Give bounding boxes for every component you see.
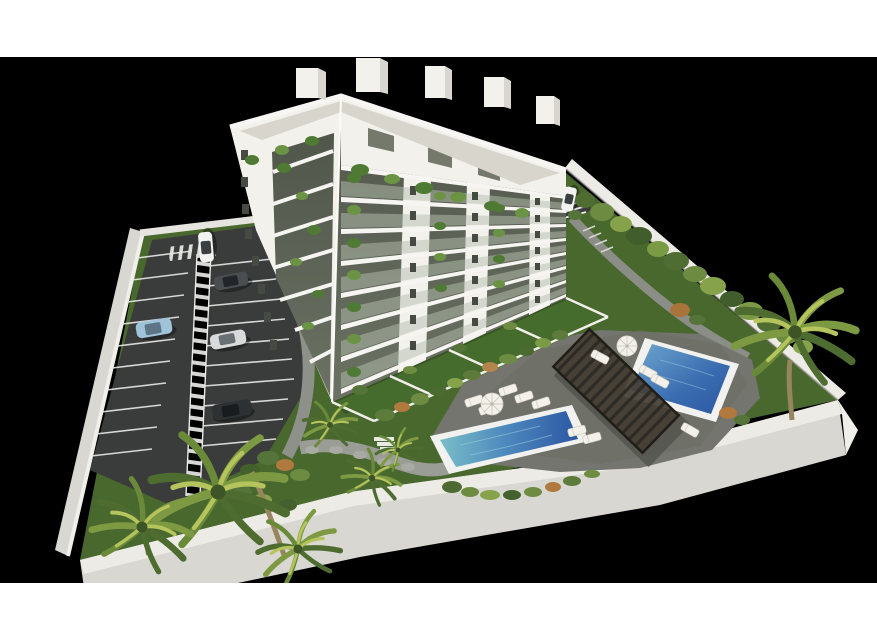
render-page — [0, 0, 877, 640]
page-band-top — [0, 0, 877, 57]
page-band-bottom — [0, 583, 877, 640]
architectural-render — [0, 0, 877, 640]
